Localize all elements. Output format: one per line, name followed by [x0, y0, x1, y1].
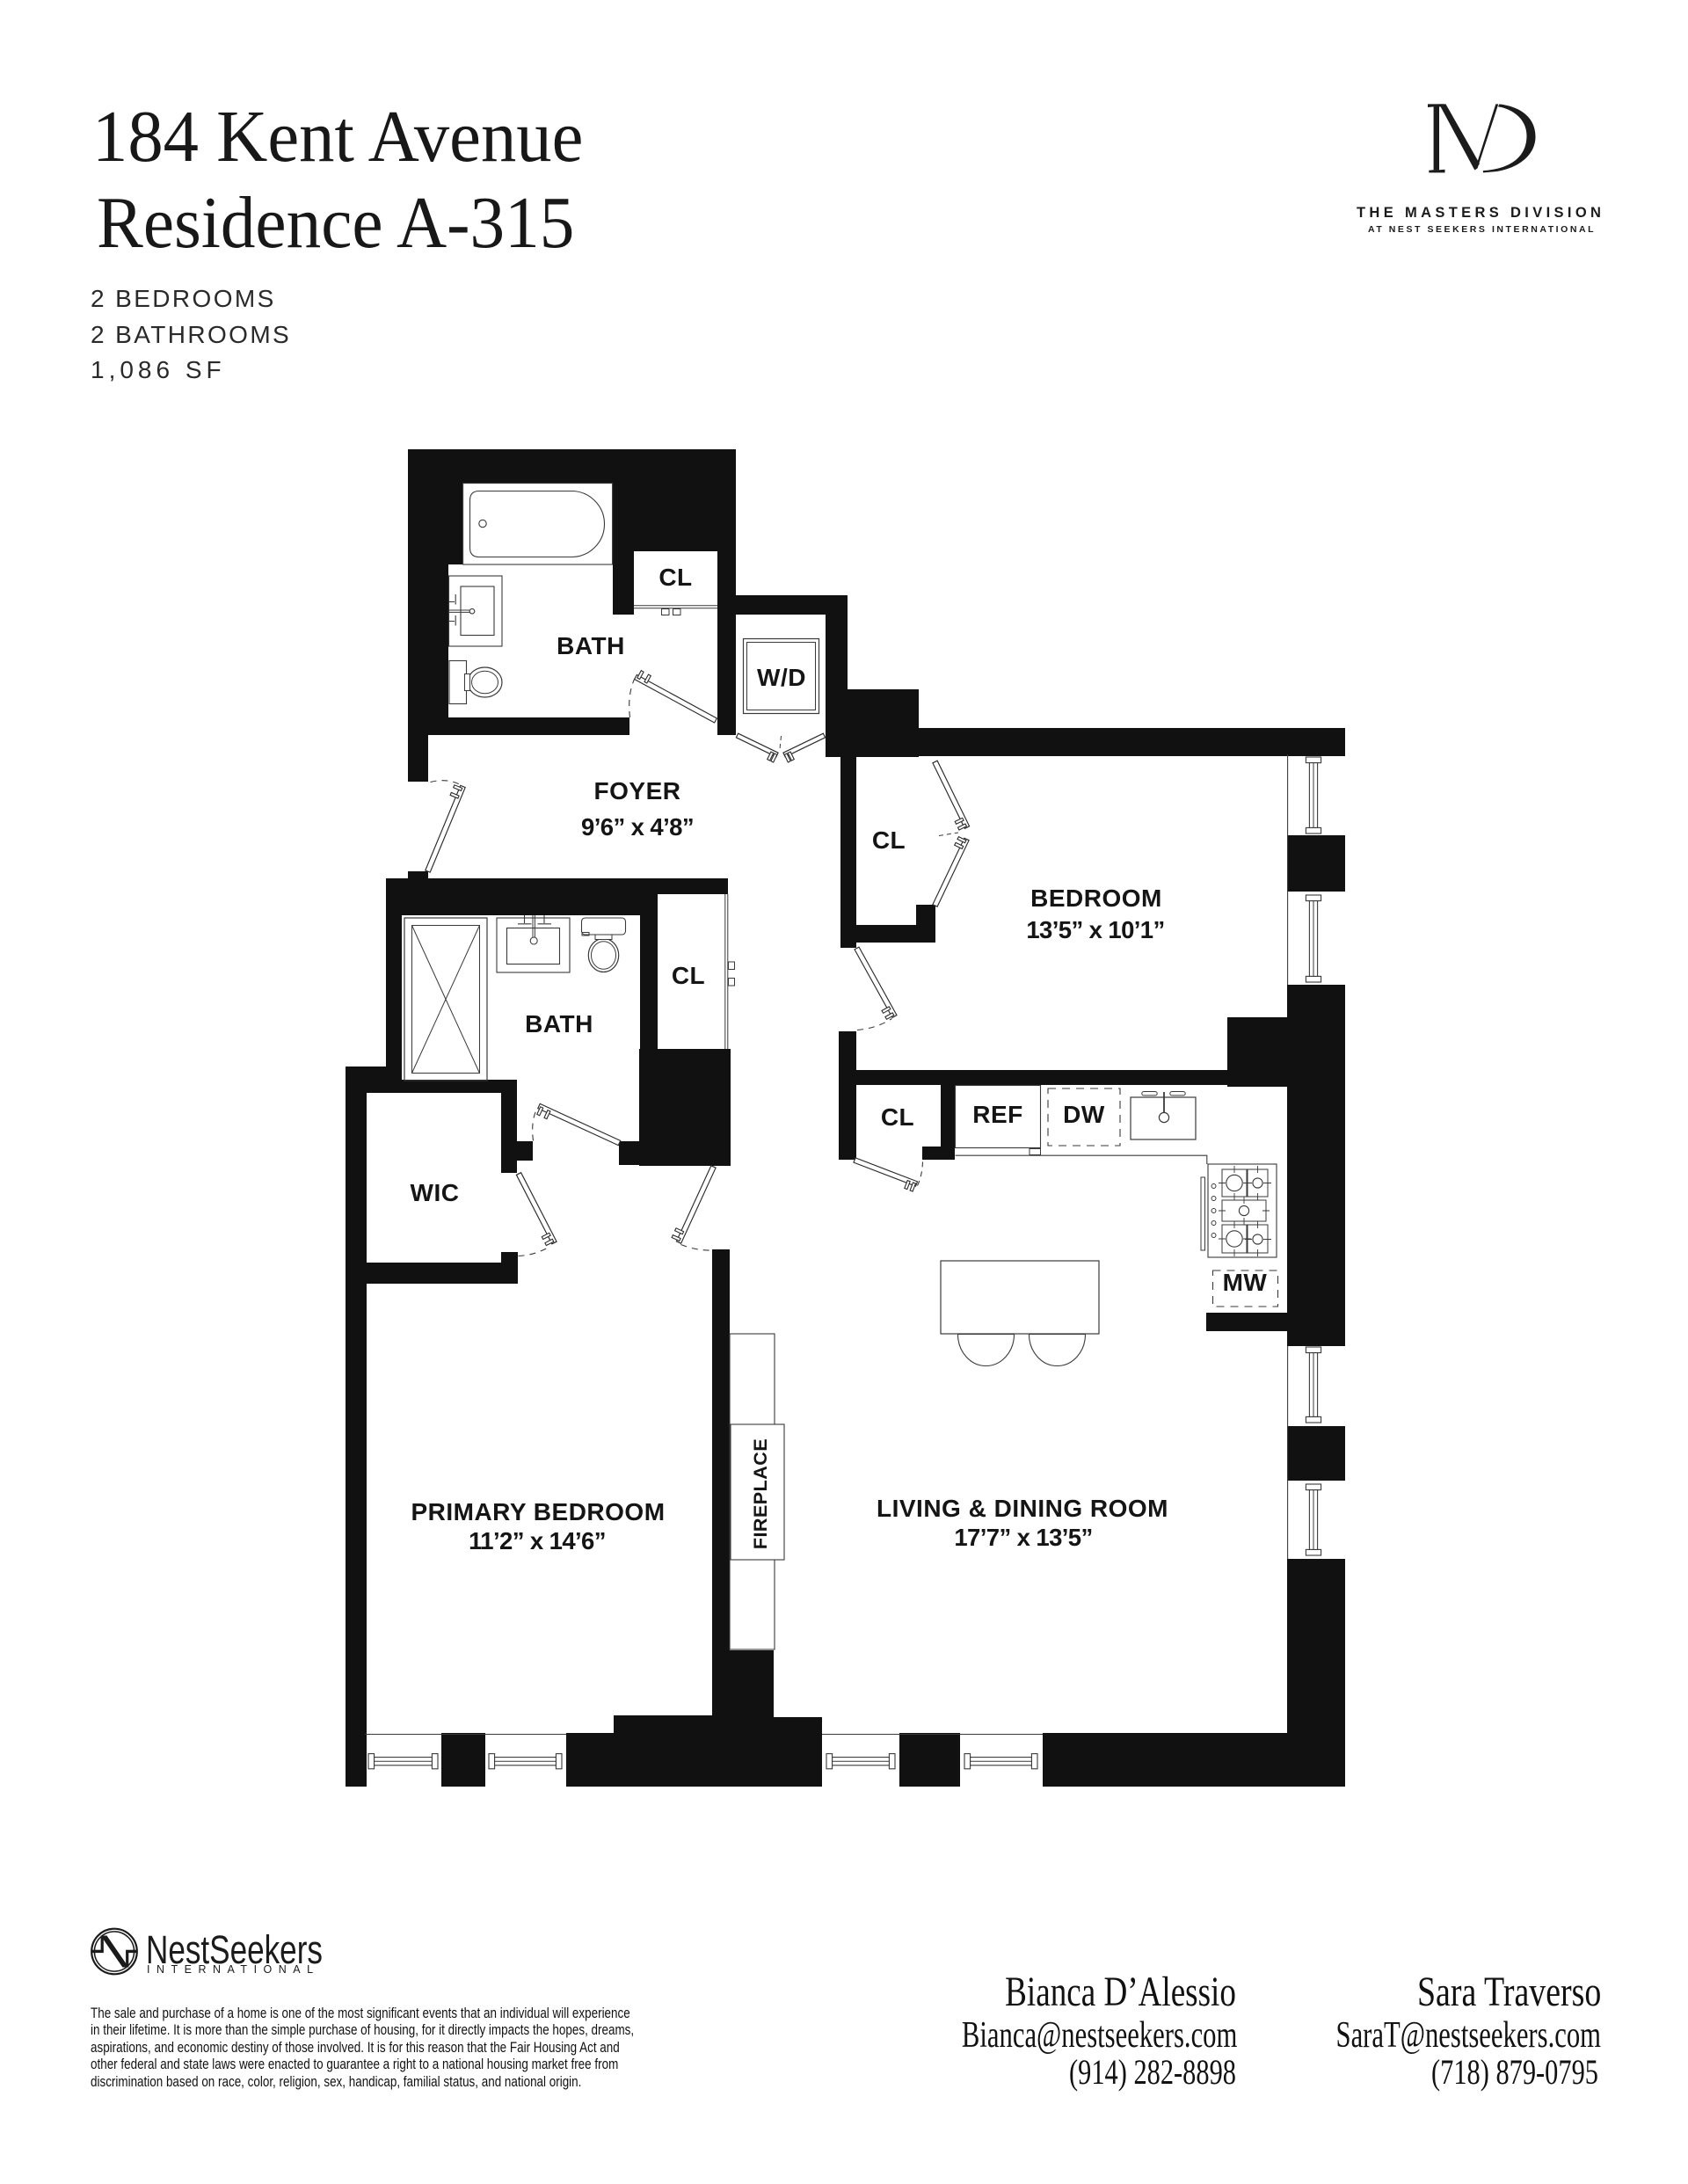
svg-text:CL: CL: [881, 1103, 914, 1131]
svg-text:BATH: BATH: [525, 1010, 593, 1037]
svg-text:CL: CL: [872, 826, 906, 854]
svg-text:REF: REF: [972, 1101, 1023, 1128]
svg-text:LIVING & DINING ROOM: LIVING & DINING ROOM: [877, 1495, 1168, 1522]
svg-text:13’5” x 10’1”: 13’5” x 10’1”: [1026, 916, 1164, 943]
svg-text:CL: CL: [672, 962, 705, 989]
svg-text:BEDROOM: BEDROOM: [1030, 885, 1162, 912]
svg-text:11’2” x 14’6”: 11’2” x 14’6”: [469, 1527, 606, 1554]
svg-text:BATH: BATH: [557, 632, 625, 659]
svg-text:17’7” x 13’5”: 17’7” x 13’5”: [954, 1524, 1092, 1551]
svg-text:9’6” x 4’8”: 9’6” x 4’8”: [581, 813, 694, 841]
svg-text:WIC: WIC: [411, 1179, 460, 1206]
svg-text:CL: CL: [658, 564, 692, 591]
svg-text:W/D: W/D: [757, 664, 806, 691]
svg-text:FOYER: FOYER: [594, 777, 681, 804]
svg-text:DW: DW: [1063, 1101, 1105, 1128]
svg-text:MW: MW: [1223, 1269, 1268, 1296]
svg-text:FIREPLACE: FIREPLACE: [750, 1438, 771, 1549]
svg-text:PRIMARY BEDROOM: PRIMARY BEDROOM: [411, 1498, 665, 1525]
